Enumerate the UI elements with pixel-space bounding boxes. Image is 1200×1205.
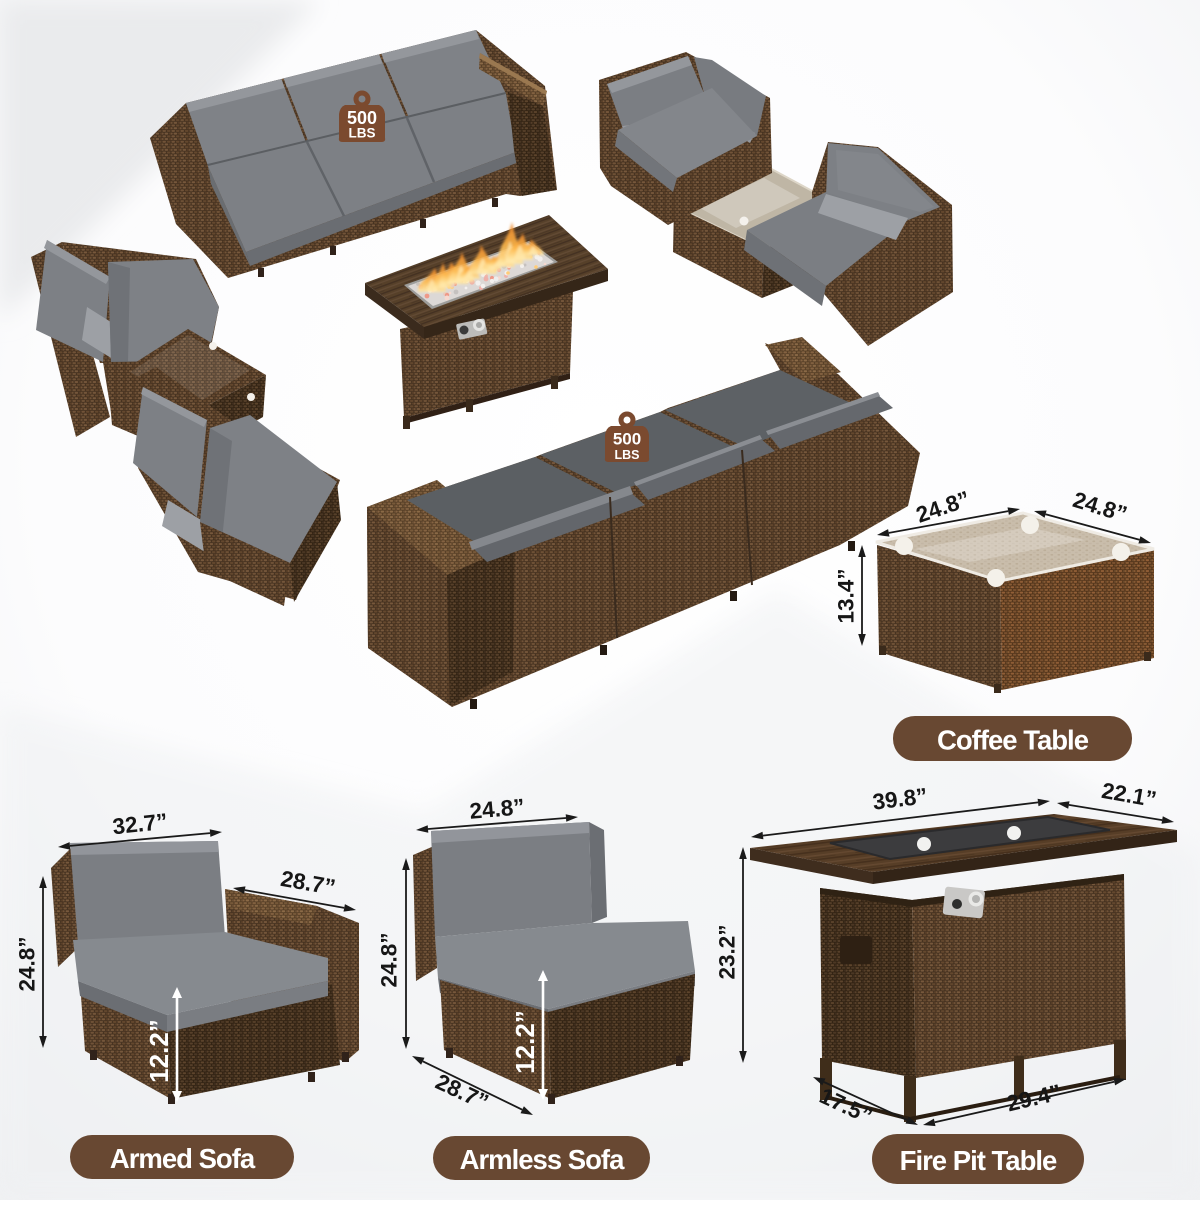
svg-text:13.4”: 13.4” [834, 568, 859, 623]
svg-text:12.2”: 12.2” [510, 1010, 540, 1074]
svg-text:LBS: LBS [615, 448, 640, 462]
svg-text:24.8”: 24.8” [15, 936, 40, 991]
svg-text:23.2”: 23.2” [715, 924, 740, 979]
svg-text:Armed Sofa: Armed Sofa [110, 1143, 256, 1174]
svg-text:Armless Sofa: Armless Sofa [460, 1144, 625, 1175]
svg-text:Fire Pit Table: Fire Pit Table [900, 1145, 1057, 1176]
svg-text:500: 500 [613, 430, 641, 449]
svg-text:12.2”: 12.2” [144, 1019, 174, 1083]
svg-text:24.8”: 24.8” [468, 794, 525, 824]
svg-text:24.8”: 24.8” [377, 932, 402, 987]
svg-text:Coffee Table: Coffee Table [937, 725, 1089, 756]
svg-text:LBS: LBS [349, 126, 376, 141]
